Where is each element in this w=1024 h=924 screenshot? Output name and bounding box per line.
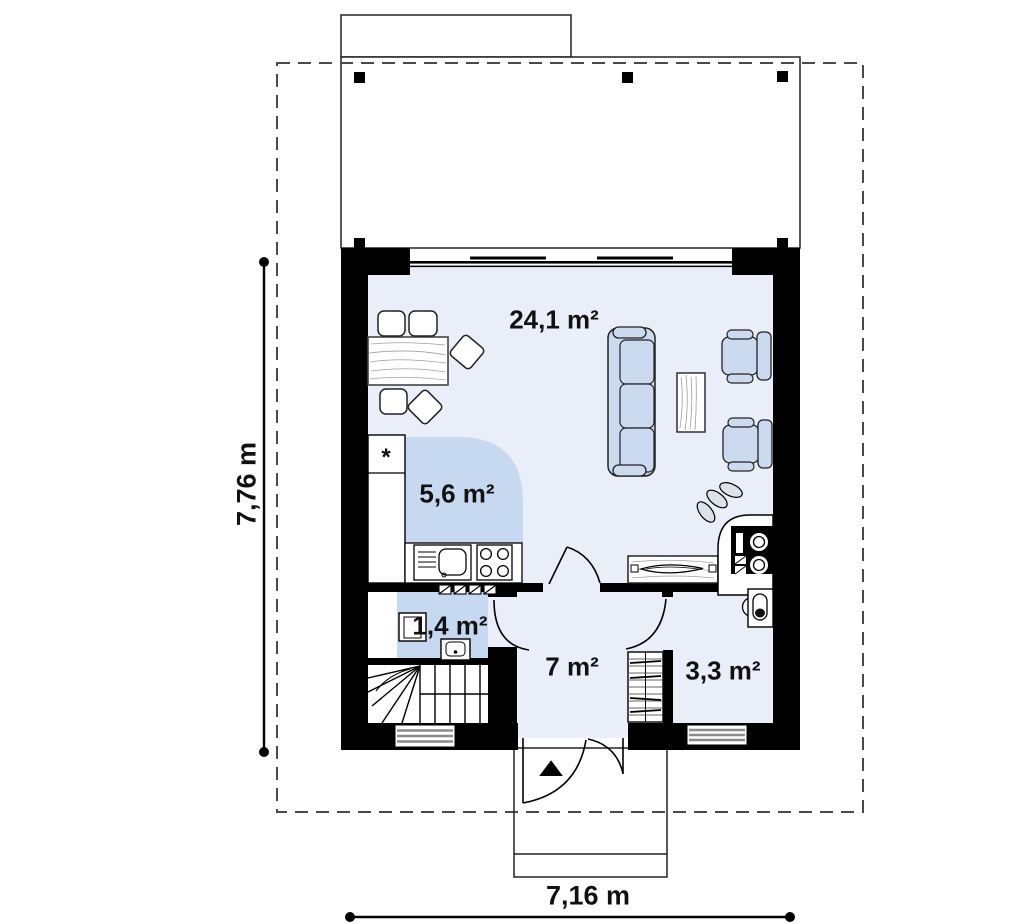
chair-icon [409,311,437,336]
staircase [368,665,490,723]
dining-table [368,337,448,385]
post-icon [354,72,365,83]
door-gap-floor [543,583,600,592]
sideboard-knob [709,565,716,572]
coffee-table [677,373,705,432]
kitchen-area-label: 5,6 m² [419,479,494,510]
entrance-arrow-icon: ▲ [531,752,571,783]
fridge-marker-icon: * [381,444,390,472]
tv-sideboard [628,556,718,583]
hall-area-label: 7 m² [545,652,598,683]
chair-icon [378,311,405,336]
armchair [722,330,771,383]
sideboard-knob [631,565,638,572]
wardrobe [628,652,663,722]
height-dimension-label: 7,76 m [232,442,263,526]
kitchen-stove [477,545,512,580]
toilet [441,639,470,660]
door-gap-floor [488,597,517,647]
kitchen-sink-unit [414,545,471,580]
living-room-area-label: 24,1 m² [509,305,599,336]
wc-area-label: 1,4 m² [412,611,487,642]
floor-plan-drawing [0,0,1024,924]
storage-area-label: 3,3 m² [685,656,760,687]
post-icon [622,72,633,83]
dimension-line-width [345,912,795,922]
glazing-top-windows [405,257,735,268]
post-icon [777,71,788,82]
terrace-outline [341,15,800,248]
window-storage-room [687,725,747,745]
floor-plan-canvas: 24,1 m² 5,6 m² 1,4 m² 7 m² 3,3 m² 7,16 m… [0,0,1024,924]
sofa [608,327,655,476]
window-under-stairs [395,725,455,747]
armchair [723,418,772,471]
width-dimension-label: 7,16 m [546,881,630,912]
chair-icon [380,389,407,414]
doorway-floor [518,723,628,738]
